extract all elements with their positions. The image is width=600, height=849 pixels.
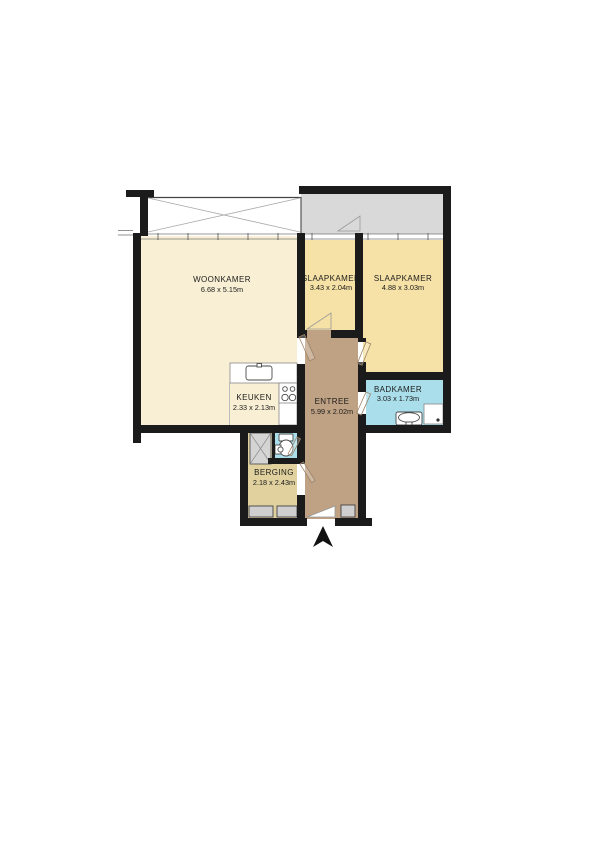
label-badkamer: BADKAMER — [374, 385, 422, 394]
kitchen-sink-icon — [246, 364, 272, 381]
label-entree: ENTREE — [315, 397, 350, 406]
north-arrow-icon — [313, 526, 333, 547]
label-slaapkamer-1: SLAAPKAMER — [302, 274, 360, 283]
balcony — [301, 194, 443, 234]
label-berging: BERGING — [254, 468, 294, 477]
label-woonkamer: WOONKAMER — [193, 275, 251, 284]
room-woonkamer — [141, 236, 297, 426]
closet — [250, 433, 271, 464]
dims-entree: 5.99 x 2.02m — [311, 407, 353, 416]
label-keuken: KEUKEN — [236, 393, 271, 402]
dims-woonkamer: 6.68 x 5.15m — [201, 285, 243, 294]
dims-keuken: 2.33 x 2.13m — [233, 403, 275, 412]
floor-plan: WOONKAMER 6.68 x 5.15m SLAAPKAMER 3.43 x… — [0, 0, 600, 849]
room-slaapkamer-2 — [363, 240, 443, 373]
entree-door-gap-fill — [307, 330, 331, 339]
dims-badkamer: 3.03 x 1.73m — [377, 394, 419, 403]
dims-slaapkamer-1: 3.43 x 2.04m — [310, 283, 352, 292]
label-slaapkamer-2: SLAAPKAMER — [374, 274, 432, 283]
room-entree — [305, 338, 358, 519]
dims-berging: 2.18 x 2.43m — [253, 478, 295, 487]
dims-slaapkamer-2: 4.88 x 3.03m — [382, 283, 424, 292]
washbasin-icon — [396, 412, 422, 425]
floorplan-page: WOONKAMER 6.68 x 5.15m SLAAPKAMER 3.43 x… — [0, 0, 600, 849]
shower-icon — [424, 404, 443, 424]
